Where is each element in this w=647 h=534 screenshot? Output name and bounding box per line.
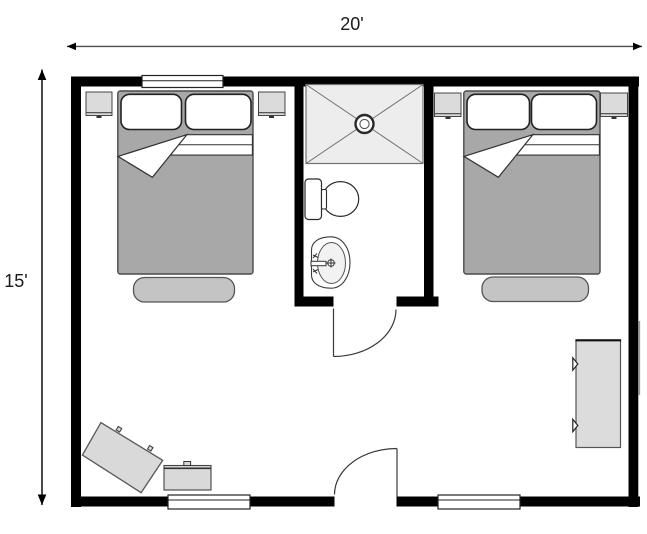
- svg-text:15': 15': [4, 271, 27, 291]
- svg-text:20': 20': [340, 14, 363, 34]
